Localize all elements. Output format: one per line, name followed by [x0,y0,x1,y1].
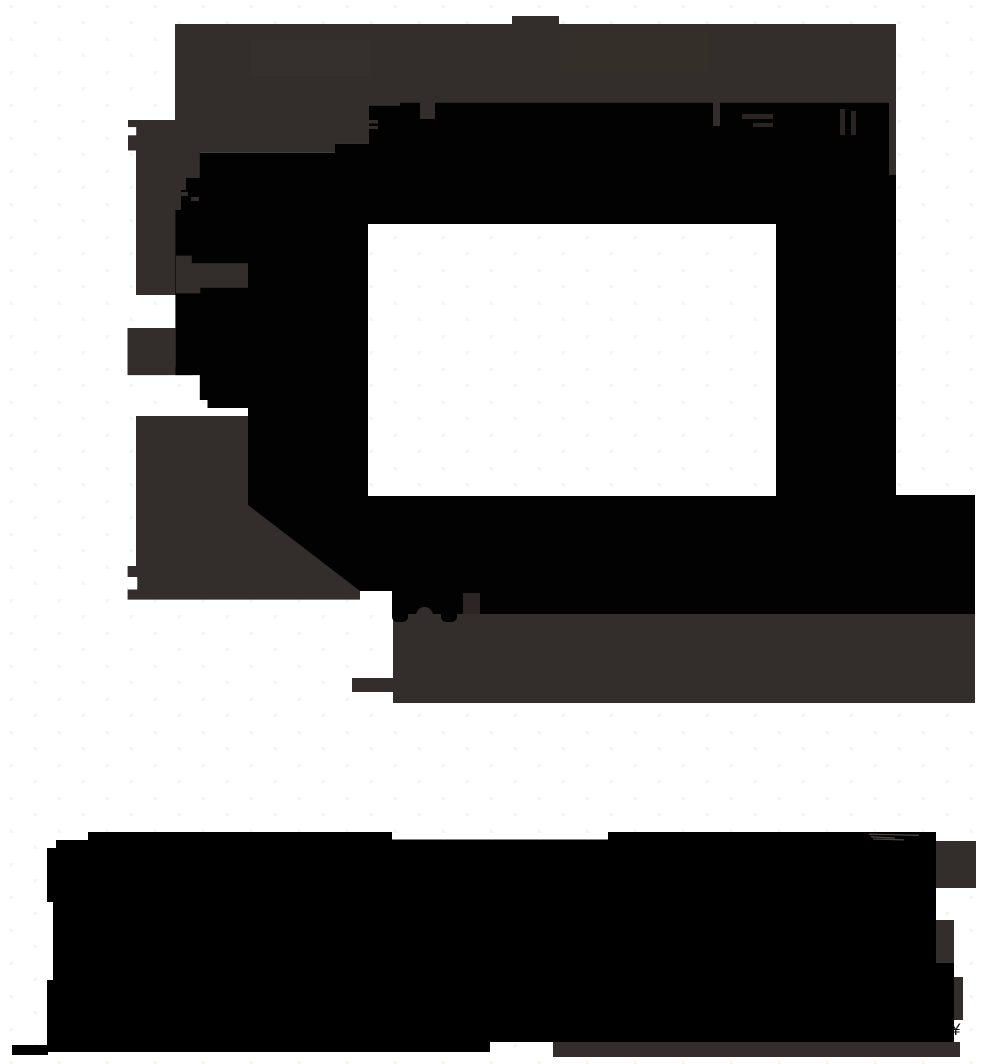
svg-text:¥: ¥ [950,1020,961,1039]
